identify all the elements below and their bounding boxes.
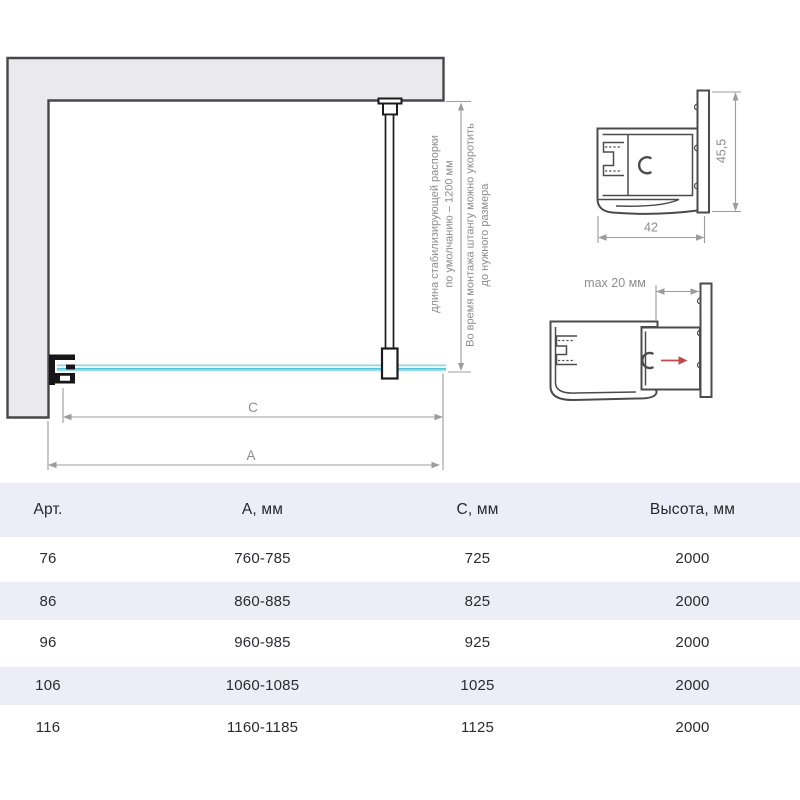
- glass-clamp: [382, 349, 398, 379]
- wall-bracket: [49, 355, 75, 386]
- cell-c: 725: [370, 550, 585, 567]
- install-note: Во время монтажа штангу можно укоротить …: [465, 123, 492, 347]
- table-row: 76 760-785 725 2000: [0, 537, 800, 579]
- cell-a: 760-785: [155, 550, 370, 567]
- dim-c-label: C: [248, 400, 258, 415]
- column-header-art: Арт.: [0, 501, 155, 519]
- cell-c: 1025: [370, 677, 585, 694]
- install-note-line1: Во время монтажа штангу можно укоротить: [465, 123, 477, 347]
- cell-art: 96: [0, 634, 155, 651]
- size-table: Арт. А, мм С, мм Высота, мм 76 760-785 7…: [0, 483, 800, 749]
- install-note-line2: до нужного размера: [479, 183, 491, 287]
- cell-c: 1125: [370, 719, 585, 736]
- cell-art: 86: [0, 593, 155, 610]
- cell-a: 860-885: [155, 593, 370, 610]
- profile-cross-section-bottom: [551, 284, 712, 401]
- cell-art: 116: [0, 719, 155, 736]
- max-offset-label: max 20 мм: [584, 276, 646, 290]
- cell-height: 2000: [585, 550, 800, 567]
- technical-drawing: длина стабилизирующей распорки по умолча…: [0, 0, 800, 483]
- cell-art: 76: [0, 550, 155, 567]
- cell-a: 1060-1085: [155, 677, 370, 694]
- column-header-c: С, мм: [370, 501, 585, 519]
- cell-c: 925: [370, 634, 585, 651]
- cell-c: 825: [370, 593, 585, 610]
- cell-a: 1160-1185: [155, 719, 370, 736]
- column-header-height: Высота, мм: [585, 501, 800, 519]
- cell-height: 2000: [585, 634, 800, 651]
- max-offset-dimension: [656, 285, 699, 320]
- dim-a-label: A: [246, 448, 255, 463]
- table-row: 116 1160-1185 1125 2000: [0, 707, 800, 749]
- table-row: 106 1060-1085 1025 2000: [0, 664, 800, 706]
- table-header-row: Арт. А, мм С, мм Высота, мм: [0, 483, 800, 537]
- strut-note-line2: по умолчанию – 1200 мм: [444, 160, 456, 287]
- cell-height: 2000: [585, 593, 800, 610]
- profile-cross-section-top: [598, 91, 710, 214]
- dimension-a: [48, 421, 440, 470]
- column-header-a: А, мм: [155, 501, 370, 519]
- cell-a: 960-985: [155, 634, 370, 651]
- cell-height: 2000: [585, 677, 800, 694]
- cell-art: 106: [0, 677, 155, 694]
- product-spec-page: длина стабилизирующей распорки по умолча…: [0, 0, 800, 800]
- profile-width-label: 42: [644, 221, 658, 235]
- cell-height: 2000: [585, 719, 800, 736]
- strut-note: длина стабилизирующей распорки по умолча…: [429, 135, 456, 313]
- strut-note-line1: длина стабилизирующей распорки: [429, 135, 441, 313]
- table-row: 86 860-885 825 2000: [0, 579, 800, 621]
- wall-section: [8, 58, 444, 418]
- table-row: 96 960-985 925 2000: [0, 622, 800, 664]
- support-bar: [379, 99, 402, 349]
- profile-height-label: 45,5: [715, 139, 729, 163]
